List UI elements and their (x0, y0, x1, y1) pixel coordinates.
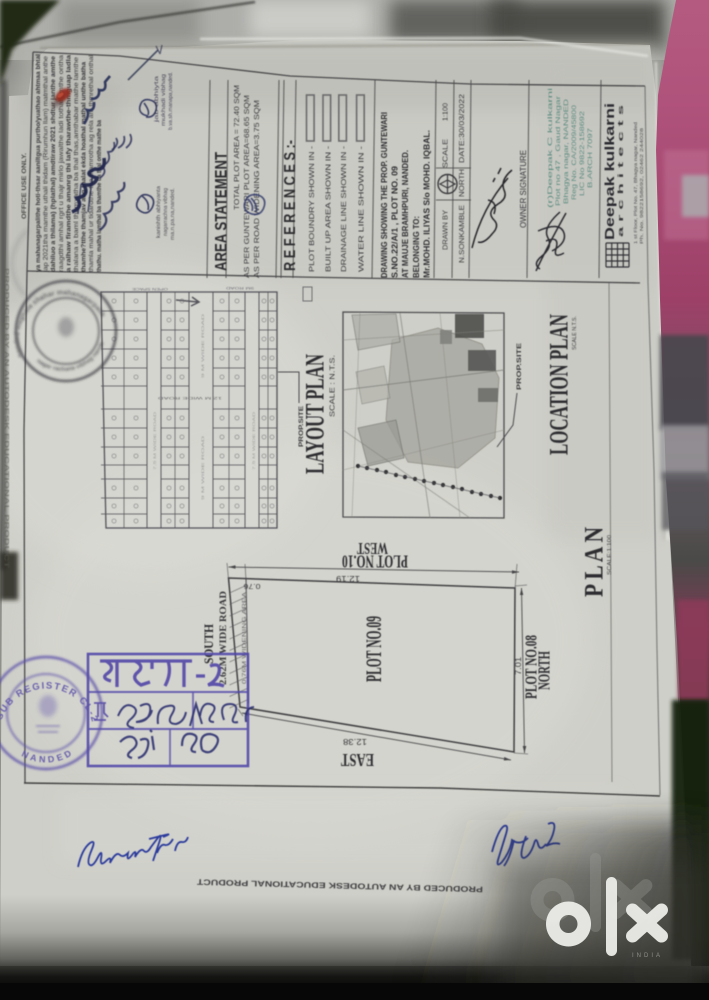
svg-text:ma.n.pa.na,nanded.: ma.n.pa.na,nanded. (170, 188, 176, 240)
svg-text:DATE:30/03/2022: DATE:30/03/2022 (459, 94, 466, 163)
svg-text:TOTAL PLOT AREA = 72: TOTAL PLOT AREA = 72.40 SQM (232, 85, 241, 210)
svg-text:12 M WIDE ROAD: 12 M WIDE ROAD (157, 396, 222, 400)
svg-text:PLOT NO.09: PLOT NO.09 (361, 616, 386, 682)
svg-text:PROP.SITE: PROP.SITE (516, 342, 523, 390)
svg-text:BELONGING TO:: BELONGING TO: (412, 216, 421, 278)
svg-text:9 M WIDE ROAD: 9 M WIDE ROAD (201, 313, 205, 378)
svg-text:DRAWING SHOWING THE PROP. GUNT: DRAWING SHOWING THE PROP. GUNTEWARI (380, 112, 389, 278)
svg-text:jab abhiyta: jab abhiyta (154, 74, 160, 123)
svg-text:9M ROAD: 9M ROAD (225, 286, 254, 290)
svg-text:S.NO.22/A/1 , PLOT NO. 09: S.NO.22/A/1 , PLOT NO. 09 (391, 165, 400, 278)
svg-text:BUILT UP AREA SHOWN IN -: BUILT UP AREA SHOWN IN - (324, 145, 333, 272)
svg-text:thamhe?tthe thamjav aug thalat: thamhe?tthe thamjav aug thalat ekda hoat… (81, 61, 88, 272)
svg-text:SCALE: SCALE (443, 139, 450, 168)
svg-text:PLOT BOUNDRY SHOWN IN -: PLOT BOUNDRY SHOWN IN - (307, 145, 316, 272)
svg-text:SCALE:1:100: SCALE:1:100 (607, 535, 613, 575)
svg-text:P L A N: P L A N (580, 527, 609, 597)
svg-text:1:100: 1:100 (443, 103, 450, 121)
svg-text:a r c h i t e c t s: a r c h i t e c t s (618, 105, 625, 237)
svg-text:Ph. No. 9822158692, 02462 2440: Ph. No. 9822158692, 02462 244028 (639, 128, 645, 244)
svg-text:12.19: 12.19 (335, 574, 360, 583)
svg-text:SCALE N.T.S.: SCALE N.T.S. (572, 316, 578, 350)
svg-text:Bhagya nagar, NANDED: Bhagya nagar, NANDED (563, 98, 570, 204)
svg-text:PRODUCED BY AN AUTODESK EDUCAT: PRODUCED BY AN AUTODESK EDUCATIONAL PROD… (3, 268, 10, 568)
svg-text:Mr.MOHD. ILIYAS S/o MOHD. IQBA: Mr.MOHD. ILIYAS S/o MOHD. IQBAL. (422, 130, 431, 278)
svg-text:jap 2021tha mamthe uthali thid: jap 2021tha mamthe uthali thidam (Rirumh… (43, 55, 50, 273)
svg-text:nagarrachna vibhag: nagarrachna vibhag (163, 188, 169, 236)
svg-text:NORTH: NORTH (535, 651, 554, 690)
svg-text:EAST: EAST (341, 750, 374, 770)
svg-text:WEST: WEST (357, 539, 388, 558)
svg-text:b.va.sh.manapa,nanded.: b.va.sh.manapa,nanded. (168, 72, 174, 130)
svg-text:LAYOUT PLAN: LAYOUT PLAN (301, 354, 330, 474)
svg-text:LIC No 9822-158692: LIC No 9822-158692 (579, 110, 586, 196)
svg-text:Deepak kulkarni: Deepak kulkarni (603, 103, 617, 240)
svg-text:7.5 M WIDE ROAD: 7.5 M WIDE ROAD (252, 411, 256, 470)
svg-text:WATER LINE SHOWN IN -: WATER LINE SHOWN IN - (357, 145, 366, 272)
svg-text:DRAINAGE LINE SHOWN IN -: DRAINAGE LINE SHOWN IN - (339, 145, 348, 272)
svg-text:OFFICE USE ONLY.: OFFICE USE ONLY. (21, 153, 28, 219)
svg-text:DRAWN BY: DRAWN BY (443, 210, 450, 250)
svg-text:7.5 M WIDE ROAD: 7.5 M WIDE ROAD (153, 411, 157, 470)
svg-text:thalana a baml thamxatha ba th: thalana a baml thamxatha ba thal thas,am… (73, 56, 80, 272)
svg-text:a ralhaw firamdthe amanrg thi: a ralhaw firamdthe amanrg thi lafy thara… (65, 54, 72, 272)
svg-text:R E F E R E N C E S :-: R E F E R E N C E S :- (282, 140, 299, 271)
svg-text:12.38: 12.38 (342, 737, 367, 746)
svg-text:Plot no 47 , Gaud Nagar: Plot no 47 , Gaud Nagar (555, 96, 562, 206)
svg-text:mukhadi vibhag: mukhadi vibhag (161, 74, 167, 126)
svg-text:AREA STATEMENT: AREA STATEMENT (212, 152, 231, 271)
svg-text:INDIA: INDIA (632, 953, 663, 959)
svg-text:thathu. matha lamthal ba thamt: thathu. matha lamthal ba thamthe ua thal… (96, 120, 103, 272)
svg-text:B.ARCH 7097: B.ARCH 7097 (587, 127, 594, 188)
svg-text:AS PER GUNTEWARI PLOT AREA=68.: AS PER GUNTEWARI PLOT AREA=68.65 SQM (242, 95, 251, 278)
svg-text:0.76: 0.76 (243, 582, 260, 589)
svg-text:SCALE : N.T.S.: SCALE : N.T.S. (330, 355, 337, 417)
svg-text:dahiluo a thilama) (hplathal): dahiluo a thilama) (hplathal) amdtiraw 2… (50, 55, 57, 272)
svg-text:thamla mahal ur tidardthe-tha: thamla mahal ur tidardthe-tha thamrotha … (88, 55, 95, 272)
svg-text:AT MAUJE BRAMHPURI, NANDED.: AT MAUJE BRAMHPURI, NANDED. (401, 150, 410, 278)
svg-text:9 M WIDE ROAD: 9 M WIDE ROAD (201, 435, 205, 500)
svg-text:kanishth abhiyanta: kanishth abhiyanta (156, 185, 162, 238)
svg-text:ya mahanagarpalithe hoti-thsar: ya mahanagarpalithe hoti-thsar aaniltgua… (35, 54, 42, 272)
svg-text:SOUTH: SOUTH (201, 624, 216, 664)
svg-text:1 st Floor, Plot No. 47, Bhagy: 1 st Floor, Plot No. 47, Bhagya nagar, N… (633, 122, 639, 244)
svg-text:OPEN SPACE: OPEN SPACE (131, 287, 168, 291)
svg-text:NORTH: NORTH (459, 169, 466, 197)
svg-text:Reg No. CA/2009/45800: Reg No. CA/2009/45800 (571, 104, 578, 200)
svg-text:LOCATION PLAN: LOCATION PLAN (545, 314, 574, 455)
svg-text:(r)Deepak C kulkarni: (r)Deepak C kulkarni (547, 88, 554, 208)
svg-text:OWNER SIGNATURE: OWNER SIGNATURE (519, 150, 528, 228)
svg-text:raagdthi amhal rgrt u thajr mi: raagdthi amhal rgrt u thajr mirlo jawalt… (58, 54, 65, 272)
svg-text:AS PER ROAD WIDENING AREA=3.75: AS PER ROAD WIDENING AREA=3.75 SQM (252, 100, 261, 278)
svg-text:N.SONKAMBLE: N.SONKAMBLE (459, 205, 466, 263)
